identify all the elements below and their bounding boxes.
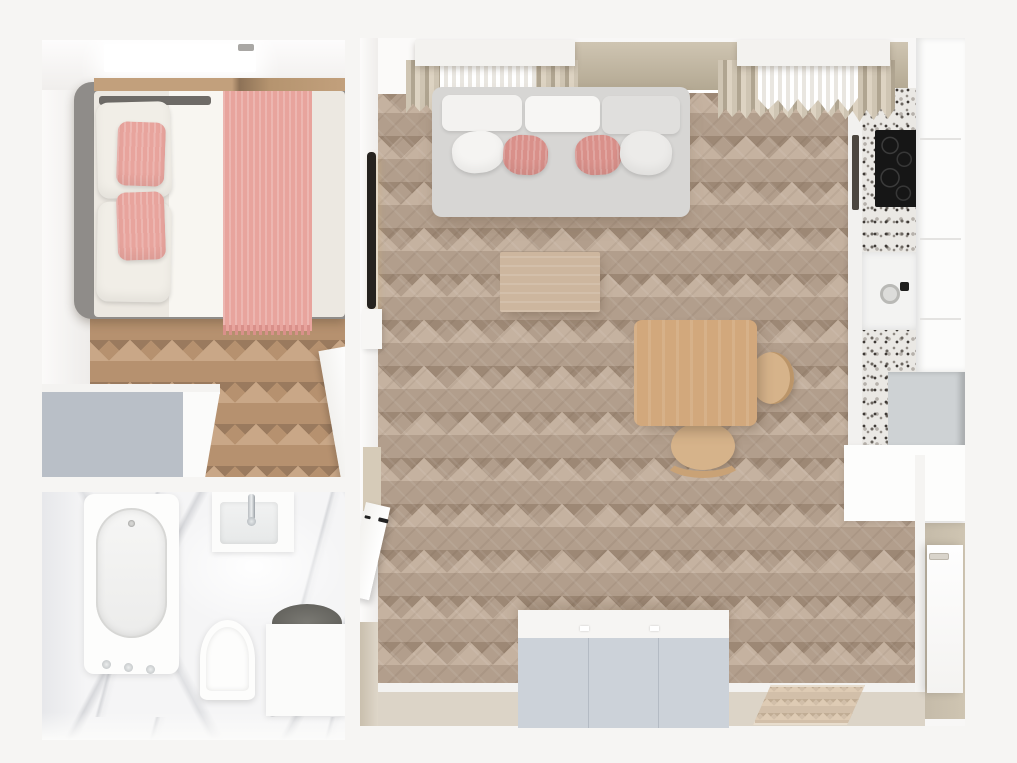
- corner-cabinet: [844, 445, 965, 521]
- dining-chair-bottom: [662, 420, 744, 480]
- pillow-pink-top: [116, 121, 166, 187]
- washbasin: [212, 492, 294, 552]
- door-handle-outer: [378, 517, 389, 523]
- induction-cooktop: [875, 130, 918, 207]
- sink-faucet-black: [900, 282, 909, 291]
- sideboard-handle-2: [650, 626, 659, 631]
- entry-wall-left: [360, 622, 378, 738]
- tv: [367, 152, 376, 309]
- dining-table: [634, 320, 757, 426]
- pillow-pink-bottom: [116, 191, 166, 261]
- baseboard-right: [915, 455, 925, 692]
- window-pelmet-right: [737, 40, 890, 66]
- entrance-door-handle: [929, 553, 949, 560]
- bed-headboard-shelf: [94, 78, 345, 91]
- bathtub-drain: [128, 520, 135, 527]
- bedroom-wardrobe-front: [42, 392, 183, 477]
- cabinet-seam-1: [920, 138, 961, 140]
- toilet-seat: [206, 627, 249, 691]
- tv-shelf: [362, 309, 382, 349]
- sofa-pillow-pink-2: [574, 134, 622, 176]
- room-living: [360, 38, 965, 738]
- bathtub: [84, 494, 179, 674]
- oven-handle: [852, 135, 859, 210]
- tub-knob-1: [102, 660, 111, 669]
- cabinet-seam-3: [920, 318, 961, 320]
- entrance-door: [927, 545, 963, 693]
- sink-drain: [880, 284, 900, 304]
- bed-sheet-fold: [169, 91, 225, 317]
- sideboard-seam-1: [588, 638, 589, 728]
- cabinet-seam-2: [920, 238, 961, 240]
- coffee-table: [500, 252, 600, 312]
- skylight-latch: [238, 44, 254, 51]
- tall-cabinet: [916, 38, 965, 372]
- laundry-unit: [266, 624, 345, 716]
- runner-fringe: [223, 325, 312, 335]
- sofa: [432, 87, 690, 217]
- basin-faucet-head: [247, 517, 256, 526]
- kitchen-sink: [862, 252, 918, 330]
- tub-knob-3: [146, 665, 155, 674]
- sideboard-handle-1: [580, 626, 589, 631]
- floor-plan-render: [0, 0, 1017, 763]
- sofa-pillow-white-left: [450, 128, 506, 175]
- door-handle-inner: [364, 515, 371, 519]
- sideboard-front: [518, 638, 729, 728]
- room-bedroom: [42, 40, 345, 477]
- bathroom-floor-sheen: [42, 712, 345, 740]
- sideboard-top: [518, 610, 729, 638]
- bathtub-basin: [96, 508, 167, 638]
- sofa-back-cushion-3: [602, 96, 680, 134]
- sofa-pillow-pink-1: [502, 134, 549, 176]
- sofa-back-cushion-1: [442, 95, 522, 131]
- toilet: [200, 620, 255, 700]
- sheer-curtain-right: [758, 60, 858, 114]
- room-bathroom: [42, 492, 345, 740]
- window-pelmet-left: [415, 40, 575, 66]
- doormat-rug: [753, 685, 865, 725]
- bathroom-wall-left: [42, 492, 86, 740]
- bed-pink-runner: [223, 91, 312, 331]
- sideboard-seam-2: [658, 638, 659, 728]
- sofa-pillow-white-right: [618, 129, 674, 177]
- fridge-top: [888, 372, 965, 452]
- tub-knob-2: [124, 663, 133, 672]
- skylight-window: [104, 44, 256, 72]
- chair-backrest: [662, 440, 744, 478]
- sofa-back-cushion-2: [525, 96, 600, 132]
